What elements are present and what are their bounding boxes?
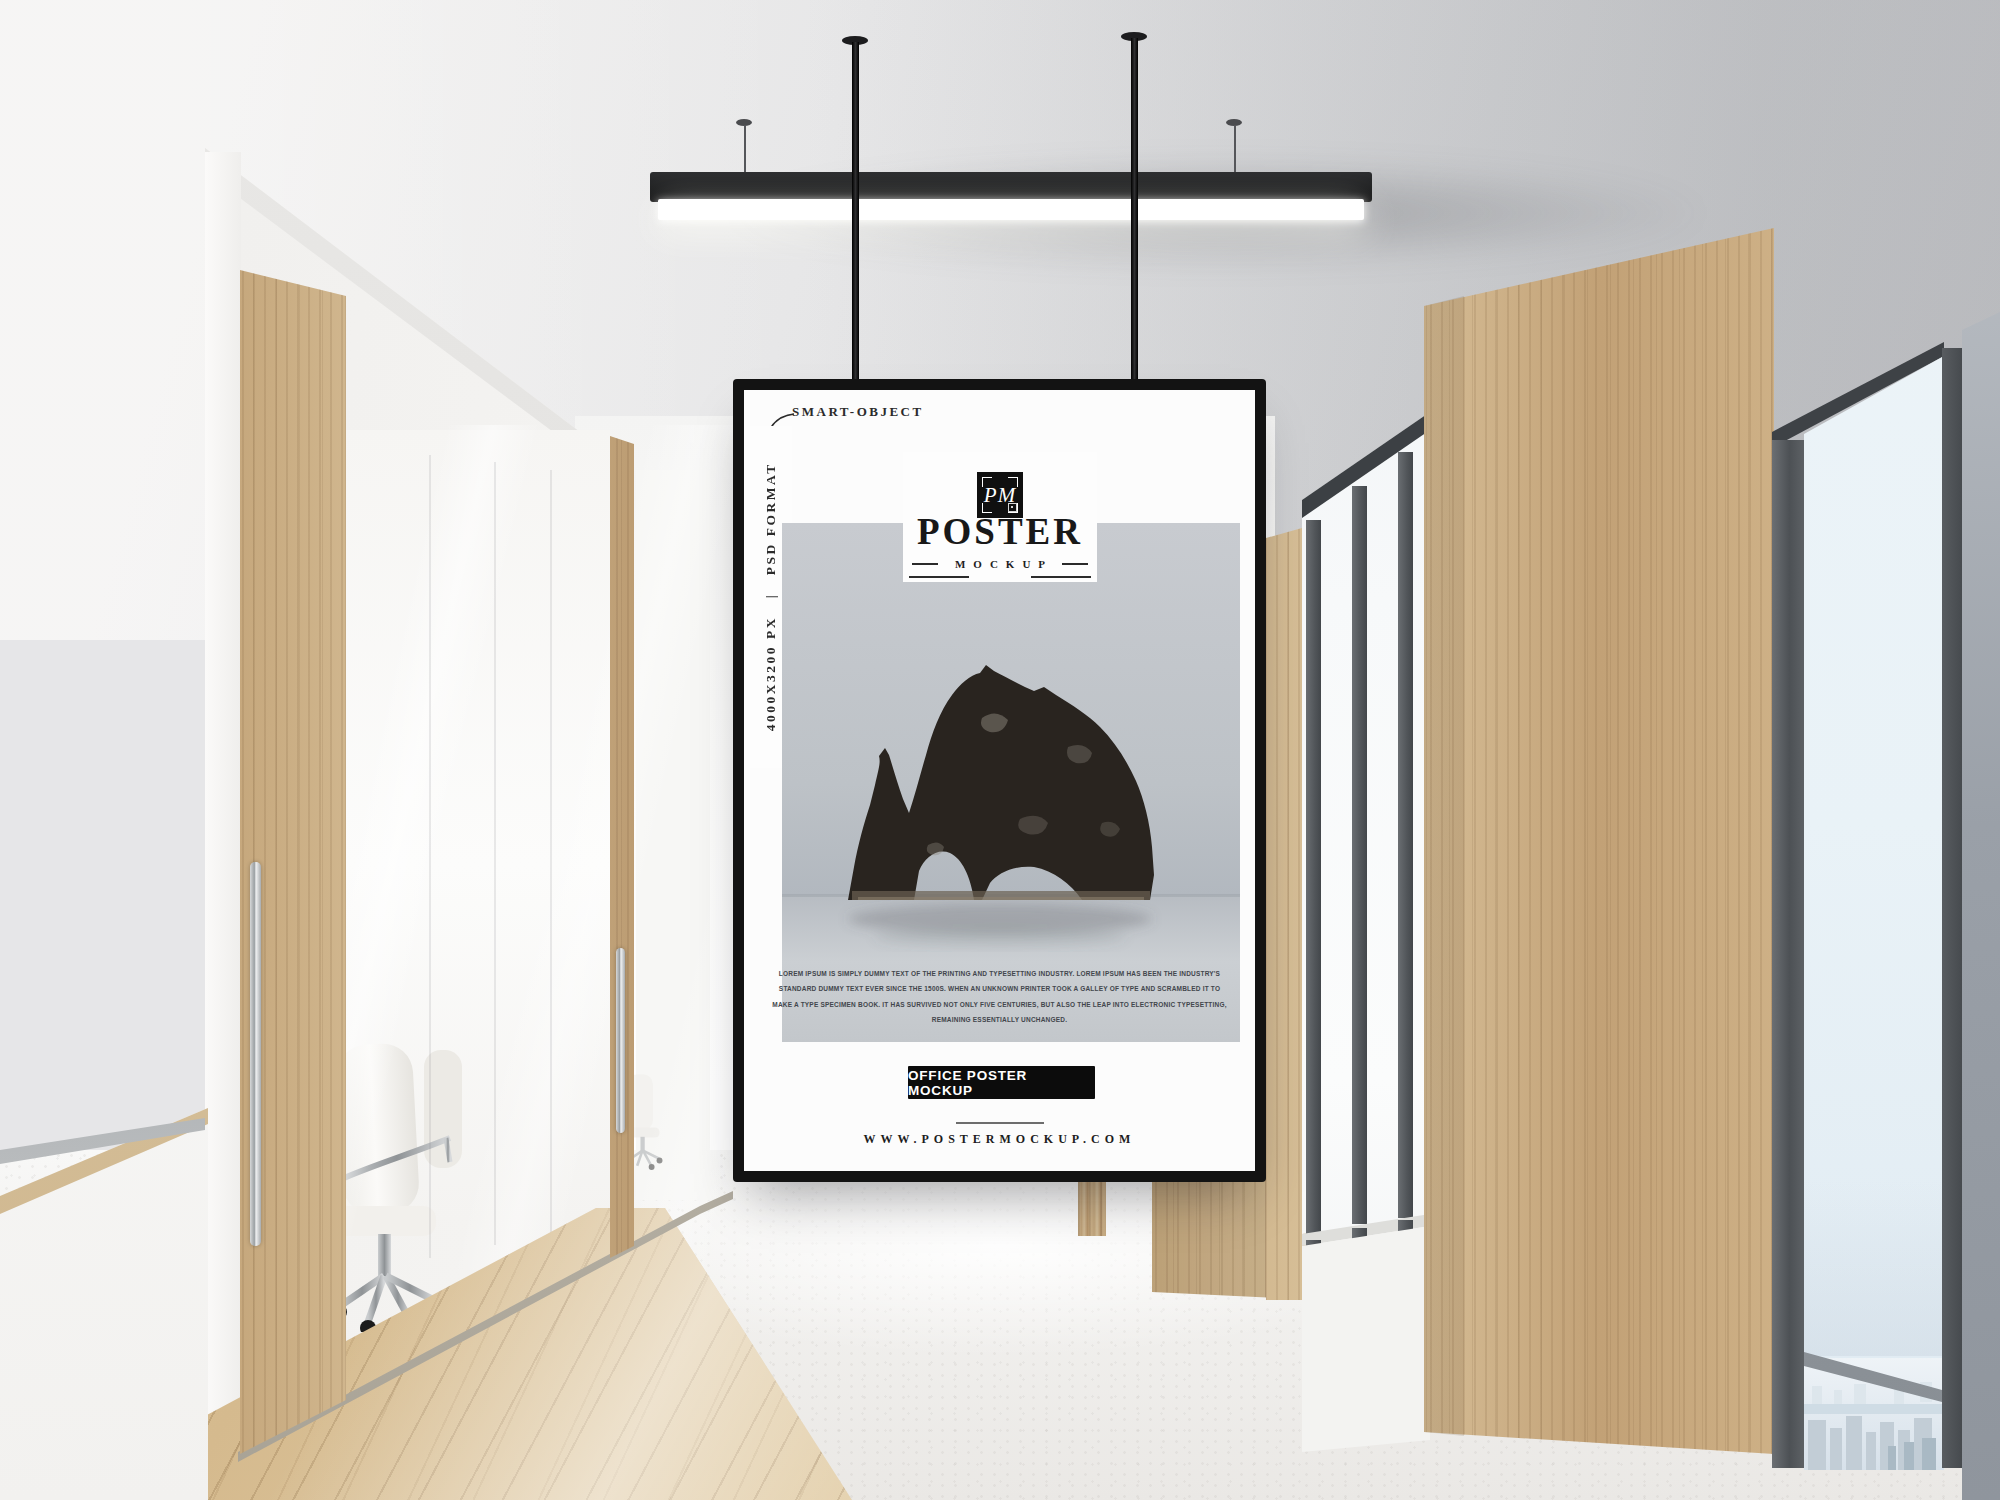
city-haze [1804,1180,1944,1356]
subtitle-dash [912,563,938,565]
subtitle-dash [1062,563,1088,565]
body-line: REMAINING ESSENTIALLY UNCHANGED. [744,1012,1255,1027]
poster-hanging-rod [852,42,859,387]
wall-jamb [205,152,241,1500]
glass-seam [429,455,431,1258]
door-handle [250,862,261,1246]
window-mullion [1306,520,1321,1236]
chair-gas-lift [378,1234,391,1278]
light-suspension-wire [744,125,746,175]
window-mullion [1352,486,1367,1224]
pendant-light-glow [658,199,1364,220]
glass-seam [550,470,552,1235]
chair-back [336,1042,421,1216]
cta-label: OFFICE POSTER MOCKUP [908,1068,1095,1098]
poster-canvas: SMART-OBJECT 4000X3200 PX | PSD FORMAT [744,390,1255,1171]
logo-rule-left [909,576,969,578]
poster-title: POSTER [903,510,1097,553]
glass-seam [494,462,496,1245]
body-line: MAKE A TYPE SPECIMEN BOOK. IT HAS SURVIV… [744,997,1255,1012]
poster-subtitle-row: MOCKUP [903,558,1097,570]
river [1804,1404,1944,1414]
cta-bar: OFFICE POSTER MOCKUP [908,1066,1095,1099]
poster-subtitle: MOCKUP [947,558,1053,570]
window-frame-mullion [1772,440,1804,1468]
linear-pendant-light [650,172,1372,202]
website-url: WWW.POSTERMOCKUP.COM [744,1132,1255,1147]
window-mullion [1398,452,1413,1218]
logo-rule-right [1031,576,1091,578]
body-line: LOREM IPSUM IS SIMPLY DUMMY TEXT OF THE … [744,966,1255,981]
poster-hanging-rod [1131,38,1138,387]
body-copy: LOREM IPSUM IS SIMPLY DUMMY TEXT OF THE … [744,966,1255,1028]
side-separator: | [763,593,779,598]
light-suspension-wire [1234,125,1236,175]
rock-reflection [848,904,1152,947]
footer-divider [956,1122,1044,1124]
smart-object-label: SMART-OBJECT [792,404,924,420]
chair-seat [334,1206,436,1236]
rock-formation-photo [782,523,1240,1042]
body-line: STANDARD DUMMY TEXT EVER SINCE THE 1500S… [744,981,1255,996]
poster-frame: SMART-OBJECT 4000X3200 PX | PSD FORMAT [733,379,1266,1182]
office-poster-mockup-scene: SMART-OBJECT 4000X3200 PX | PSD FORMAT [0,0,2000,1500]
rock-shore [858,897,1144,900]
side-size-label: 4000X3200 PX [763,616,779,731]
side-format-label: PSD FORMAT [763,462,779,575]
door-handle-far [616,948,625,1133]
logo-block: PM POSTER MOCKUP [903,452,1097,582]
